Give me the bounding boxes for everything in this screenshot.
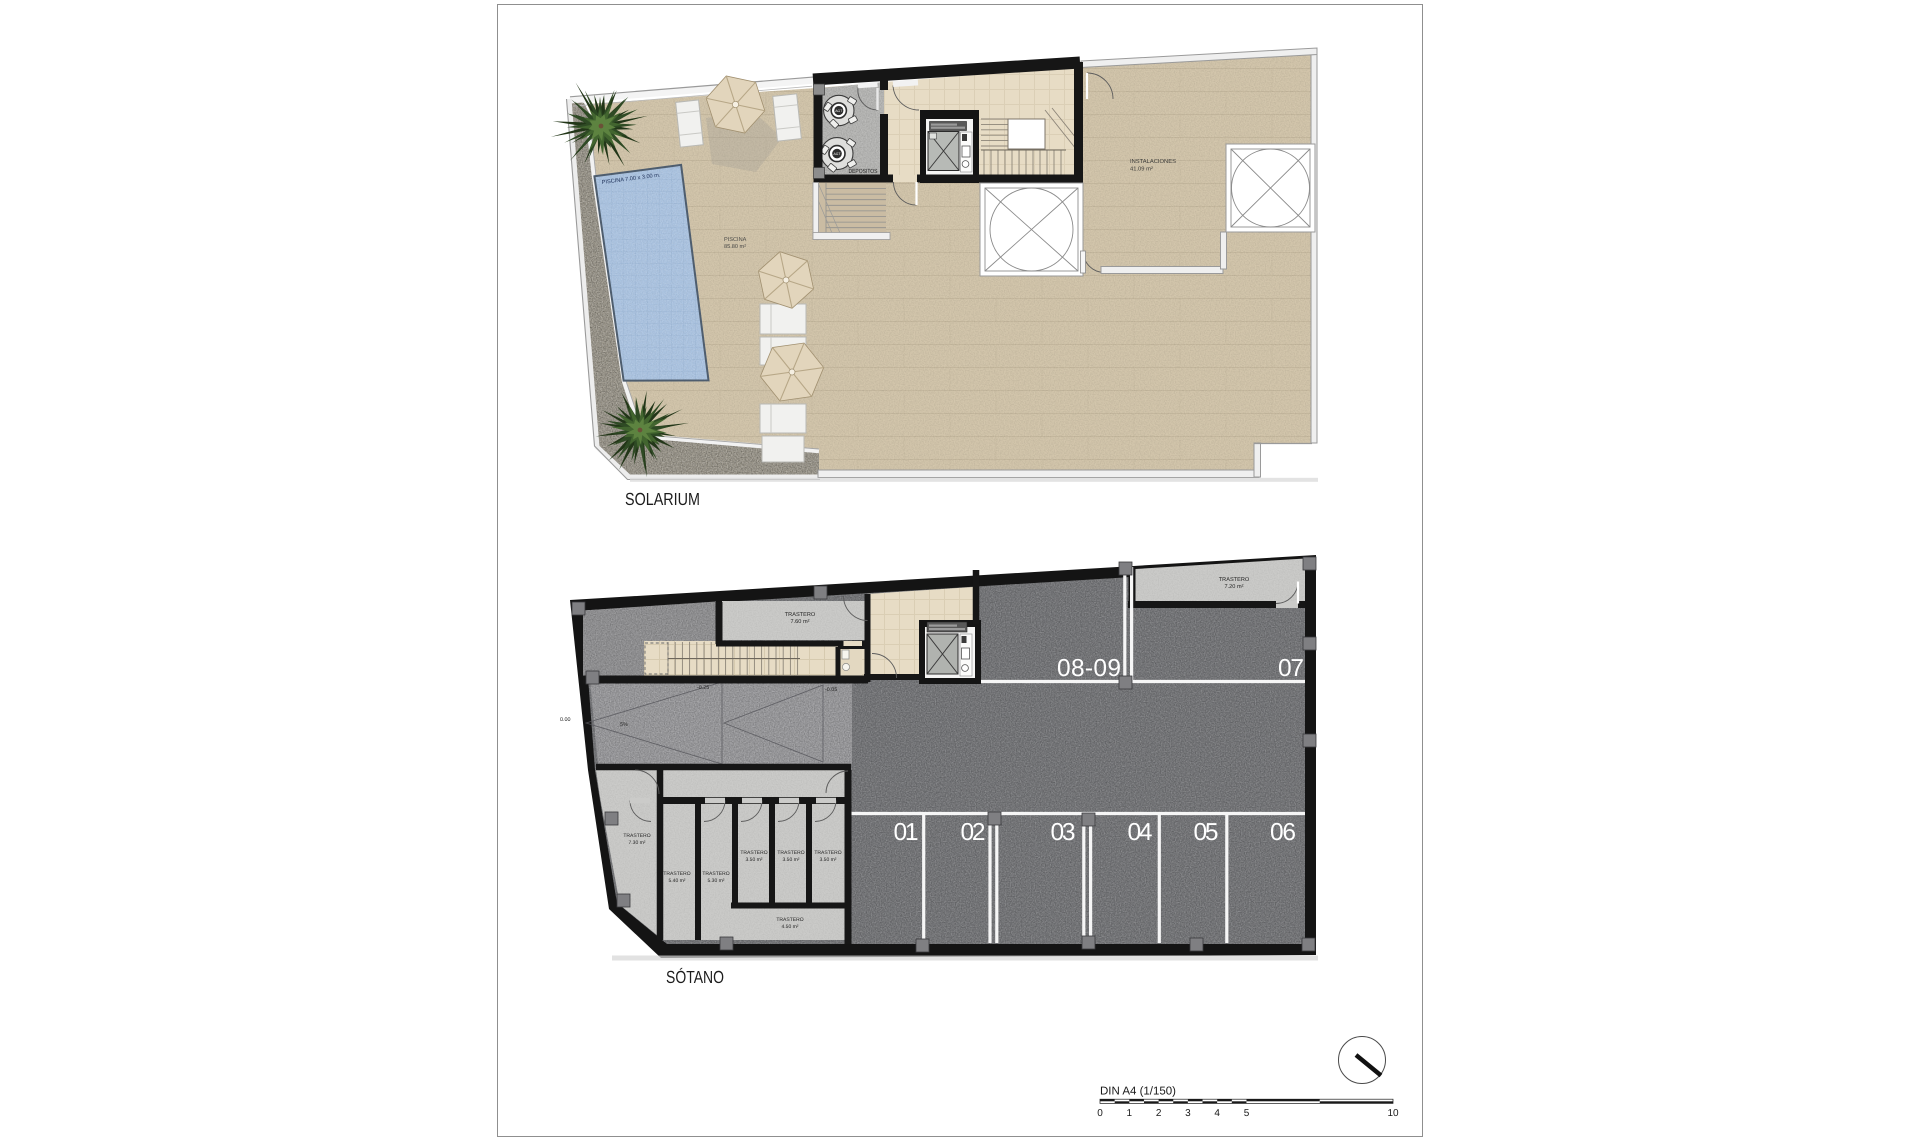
svg-text:5.30 m²: 5.30 m² bbox=[708, 878, 725, 884]
svg-text:1: 1 bbox=[1127, 1108, 1133, 1119]
svg-text:0: 0 bbox=[1097, 1108, 1103, 1119]
svg-text:10: 10 bbox=[1387, 1108, 1399, 1119]
svg-text:2: 2 bbox=[1156, 1108, 1162, 1119]
svg-text:7.30 m²: 7.30 m² bbox=[629, 840, 646, 846]
svg-text:5.40 m²: 5.40 m² bbox=[669, 878, 686, 884]
svg-text:01: 01 bbox=[894, 819, 919, 846]
svg-text:-0.05: -0.05 bbox=[825, 687, 837, 693]
svg-text:06: 06 bbox=[1270, 819, 1296, 846]
svg-text:TRASTERO: TRASTERO bbox=[777, 850, 804, 856]
svg-text:03: 03 bbox=[1051, 819, 1076, 846]
svg-text:TRASTERO: TRASTERO bbox=[740, 850, 767, 856]
svg-text:5%: 5% bbox=[620, 722, 628, 728]
svg-text:TRASTERO: TRASTERO bbox=[785, 612, 816, 618]
svg-text:DIN A4 (1/150): DIN A4 (1/150) bbox=[1100, 1086, 1176, 1098]
svg-text:85.80 m²: 85.80 m² bbox=[724, 244, 746, 250]
svg-text:0.00: 0.00 bbox=[560, 717, 571, 723]
svg-text:TRASTERO: TRASTERO bbox=[814, 850, 841, 856]
svg-text:08-09: 08-09 bbox=[1057, 655, 1121, 682]
svg-text:-0.25: -0.25 bbox=[697, 685, 709, 691]
svg-text:4.50 m²: 4.50 m² bbox=[782, 924, 799, 930]
svg-text:TRASTERO: TRASTERO bbox=[776, 917, 803, 923]
svg-text:04: 04 bbox=[1128, 819, 1153, 846]
svg-text:5: 5 bbox=[1244, 1108, 1250, 1119]
svg-text:TRASTERO: TRASTERO bbox=[663, 871, 690, 877]
svg-text:41.09 m²: 41.09 m² bbox=[1130, 166, 1153, 173]
svg-text:7.60 m²: 7.60 m² bbox=[791, 619, 810, 625]
svg-text:AGT: AGT bbox=[835, 109, 842, 113]
svg-text:02: 02 bbox=[961, 819, 986, 846]
svg-text:05: 05 bbox=[1194, 819, 1219, 846]
svg-text:AGT: AGT bbox=[834, 152, 841, 156]
svg-text:3: 3 bbox=[1185, 1108, 1191, 1119]
svg-text:7.20 m²: 7.20 m² bbox=[1225, 584, 1244, 590]
svg-text:TRASTERO: TRASTERO bbox=[702, 871, 729, 877]
svg-text:TRASTERO: TRASTERO bbox=[623, 833, 650, 839]
svg-text:3.50 m²: 3.50 m² bbox=[783, 857, 800, 863]
svg-text:3.50 m²: 3.50 m² bbox=[820, 857, 837, 863]
svg-text:07: 07 bbox=[1278, 655, 1304, 682]
svg-text:PISCINA: PISCINA bbox=[724, 237, 747, 243]
svg-text:INSTALACIONES: INSTALACIONES bbox=[1130, 158, 1176, 165]
svg-text:TRASTERO: TRASTERO bbox=[1219, 577, 1250, 583]
svg-text:SÓTANO: SÓTANO bbox=[666, 967, 724, 987]
svg-text:DEPOSITOS: DEPOSITOS bbox=[849, 168, 878, 175]
svg-text:SOLARIUM: SOLARIUM bbox=[625, 489, 700, 509]
svg-text:4: 4 bbox=[1214, 1108, 1220, 1119]
svg-text:3.50 m²: 3.50 m² bbox=[746, 857, 763, 863]
